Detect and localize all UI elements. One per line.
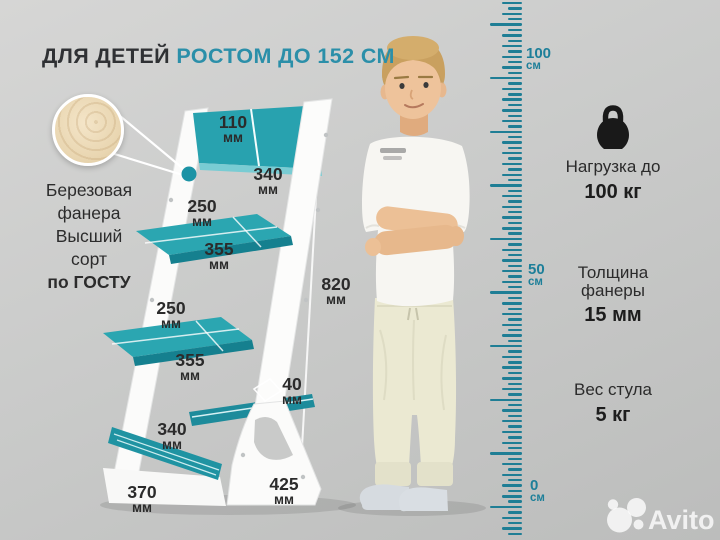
avito-wordmark: Avito <box>648 505 715 535</box>
page-title: ДЛЯ ДЕТЕЙ РОСТОМ ДО 152 СМ <box>42 44 395 69</box>
dimension-base-depth: 370мм <box>104 484 180 516</box>
dimension-seat-depth: 250мм <box>164 198 240 230</box>
gost-emphasis: по ГОСТУ <box>14 271 164 294</box>
dimension-base-width: 425мм <box>246 476 322 508</box>
material-callout-text: Березовая фанера Высший сорт по ГОСТУ <box>14 179 164 294</box>
ruler-label-100: 100см <box>526 47 551 73</box>
avito-logo-circle-tiny <box>634 520 644 530</box>
dimension-footrest-width: 355мм <box>152 352 228 384</box>
dimension-crossbar-length: 340мм <box>134 421 210 453</box>
feature-chair-weight: Вес стула 5 кг <box>531 376 695 427</box>
kettlebell-icon <box>531 105 695 153</box>
title-dark: ДЛЯ ДЕТЕЙ <box>42 44 170 68</box>
dimension-backrest-width: 340мм <box>230 166 306 198</box>
avito-watermark-logo: Avito <box>604 496 716 538</box>
title-accent: РОСТОМ ДО 152 СМ <box>176 44 394 68</box>
dimension-footrest-depth: 250мм <box>133 300 209 332</box>
material-marker-dot <box>182 167 197 182</box>
dimension-seat-width: 355мм <box>181 241 257 273</box>
tshirt-print <box>380 148 406 153</box>
avito-logo-circle-medium <box>627 498 646 517</box>
dimension-chair-height: 820мм <box>298 276 374 308</box>
avito-logo-circle-small <box>608 499 618 509</box>
feature-max-load: Нагрузка до 100 кг <box>531 105 695 204</box>
product-image: ДЛЯ ДЕТЕЙ РОСТОМ ДО 152 СМ Березовая фан… <box>0 0 720 540</box>
dimension-plank-thickness: 40мм <box>254 376 330 408</box>
birch-plywood-texture <box>52 94 124 166</box>
ruler-label-0: 0см <box>530 479 545 505</box>
feature-plywood-thickness: Толщина фанеры 15 мм <box>531 259 695 327</box>
child-photo <box>360 36 470 511</box>
dimension-backrest-height: 110мм <box>195 114 271 146</box>
